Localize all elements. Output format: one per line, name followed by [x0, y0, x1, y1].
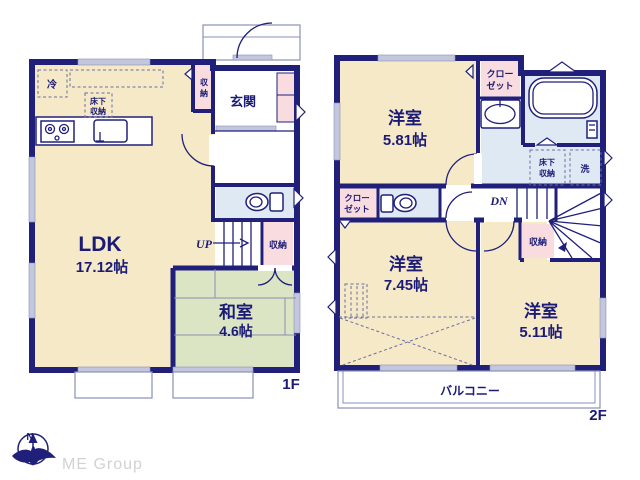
genkan-step	[216, 126, 276, 131]
kitchen-counter	[36, 117, 152, 145]
floor-plan-canvas: LDK 17.12帖 和室 4.6帖 玄関 冷 床下 収納 収 納 UP 収納 …	[0, 0, 640, 480]
toilet-icon-2f	[381, 195, 416, 213]
hall-storage-label-2: 納	[200, 88, 208, 98]
west1-size: 5.81帖	[383, 131, 427, 149]
west2-label: 洋室	[389, 254, 423, 274]
closet-a-label-2: ゼット	[486, 80, 513, 91]
closet-b-label-1: クロー	[344, 193, 370, 203]
west2-window-mark-lower	[328, 299, 336, 315]
sink-icon	[94, 120, 127, 142]
shoe-cabinet-lower	[277, 95, 296, 122]
compass-n-label: N	[26, 432, 33, 443]
stairs-up-label: UP	[196, 237, 213, 251]
closet-b-label-2: ゼット	[344, 204, 370, 214]
terrace-left	[75, 372, 152, 398]
floor-plan-drawing: LDK 17.12帖 和室 4.6帖 玄関 冷 床下 収納 収 納 UP 収納 …	[0, 0, 640, 480]
floor-1: LDK 17.12帖 和室 4.6帖 玄関 冷 床下 収納 収 納 UP 収納 …	[29, 23, 305, 398]
west3-size: 5.11帖	[519, 323, 562, 341]
ldk-label: LDK	[78, 233, 121, 256]
stairs-down-label: DN	[489, 194, 509, 208]
laundry-label: 洗	[580, 163, 589, 174]
porch-threshold	[233, 55, 272, 60]
underfloor-label-2: 収納	[90, 106, 106, 116]
storage-2f-label: 収納	[529, 236, 547, 247]
hall-storage	[195, 64, 213, 111]
west1-door-opening	[474, 154, 482, 184]
west2-window-mark-upper	[328, 249, 336, 265]
west1-label: 洋室	[388, 108, 422, 128]
floor-label-2f: 2F	[589, 407, 607, 424]
hall-door-arc	[446, 192, 472, 218]
closet-a-label-1: クロー	[486, 69, 513, 79]
hall-storage-label-1: 収	[200, 77, 209, 87]
closet-a	[481, 61, 520, 97]
genkan-label: 玄関	[230, 94, 256, 109]
ldk-size: 17.12帖	[76, 258, 129, 276]
washbasin-icon	[481, 100, 520, 128]
shoe-cabinet-upper	[277, 73, 296, 95]
washroom-window-mark	[604, 150, 612, 166]
fridge-label: 冷	[47, 78, 57, 91]
west3-label: 洋室	[524, 301, 558, 321]
stairhall-window-mark	[604, 192, 612, 208]
underfloor-2f-label-1: 床下	[539, 157, 555, 167]
stairs-storage-label: 収納	[269, 239, 287, 250]
genkan-door-mark	[296, 103, 305, 121]
underfloor-label-1: 床下	[90, 96, 106, 106]
stairs-up-arrow	[213, 239, 248, 247]
ldk-door-opening	[209, 135, 217, 165]
stairs-1f	[213, 222, 251, 267]
terrace-right	[173, 372, 253, 398]
compass-icon: N	[12, 432, 56, 465]
bathroom-vent-mark	[548, 62, 576, 72]
balcony-label: バルコニー	[440, 384, 500, 398]
underfloor-2f-label-2: 収納	[539, 168, 555, 178]
washitsu-label: 和室	[219, 302, 253, 322]
washitsu-size: 4.6帖	[219, 323, 252, 339]
west2-size: 7.45帖	[384, 276, 428, 294]
toilet-icon-1f	[246, 193, 283, 211]
floor-label-1f: 1F	[282, 376, 300, 393]
floor-2: 洋室 5.81帖 クロー ゼット 床下 収納 洗 DN クロー ゼット 収納 洋…	[328, 55, 612, 424]
company-logo-text: ME Group	[62, 456, 143, 473]
entrance-porch	[203, 23, 300, 60]
